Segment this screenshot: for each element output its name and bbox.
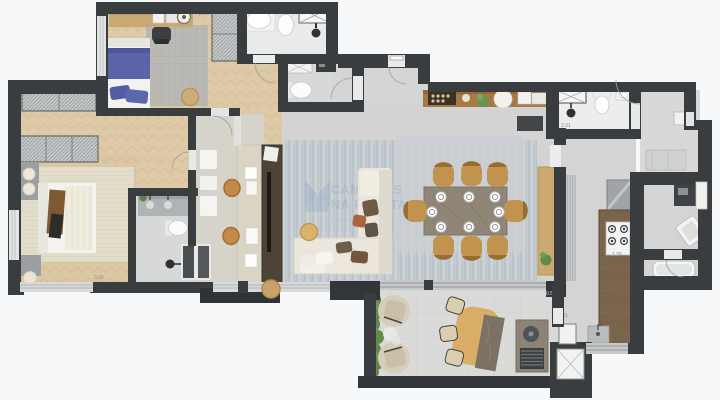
svg-text:1.26: 1.26 [612,252,622,258]
svg-text:3.06: 3.06 [94,275,104,281]
